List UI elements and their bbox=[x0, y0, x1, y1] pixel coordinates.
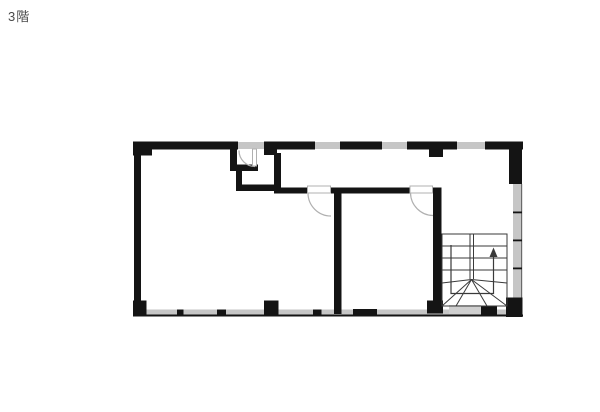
room-door-1-leaf bbox=[308, 186, 331, 193]
top-window-1 bbox=[315, 142, 340, 149]
right-window-edge bbox=[521, 184, 522, 303]
right-window-separator-3 bbox=[513, 268, 522, 270]
floor-plan-page: 3階 bbox=[0, 0, 600, 412]
bottom-pier-3 bbox=[264, 301, 279, 317]
corridor-wall-mid bbox=[331, 188, 410, 194]
right-window-separator-1 bbox=[513, 212, 522, 214]
corridor-wall-left bbox=[274, 188, 307, 194]
entrance-door-leaf bbox=[253, 149, 257, 166]
partition-wall-2-pier bbox=[427, 301, 443, 314]
bottom-left-corner-pier bbox=[133, 301, 147, 317]
room-door-1-arc bbox=[308, 193, 331, 216]
vestibule-wall-box-right bbox=[274, 153, 281, 191]
bottom-pier-2 bbox=[217, 310, 226, 316]
entrance-opening bbox=[238, 142, 264, 149]
left-wall bbox=[134, 142, 141, 317]
right-window-separator-2 bbox=[513, 240, 522, 242]
floor-plan-drawing bbox=[0, 0, 600, 412]
top-wall-stub-pier bbox=[429, 149, 443, 157]
partition-wall-2 bbox=[433, 188, 442, 310]
top-wall-mid2 bbox=[340, 142, 382, 150]
stair-winder-6 bbox=[472, 280, 508, 284]
bottom-pier-1 bbox=[177, 310, 184, 316]
right-wall-top bbox=[509, 142, 522, 185]
bottom-pier-5 bbox=[353, 309, 377, 316]
right-window bbox=[513, 184, 522, 303]
stair-winder-4 bbox=[472, 280, 488, 307]
staircase bbox=[442, 234, 507, 306]
stair-walk-line bbox=[451, 245, 494, 294]
bottom-pier-4 bbox=[313, 310, 322, 316]
stair-winder-5 bbox=[472, 280, 508, 307]
top-wall-mid3 bbox=[407, 142, 457, 150]
entrance-pier bbox=[264, 142, 277, 156]
bottom-pier-6 bbox=[481, 307, 497, 316]
top-window-3 bbox=[457, 142, 485, 149]
stair-winder-1 bbox=[442, 280, 472, 284]
partition-wall-1 bbox=[334, 188, 342, 314]
bottom-wall-edge bbox=[133, 315, 523, 317]
room-door-2-leaf bbox=[410, 186, 433, 193]
room-door-2-arc bbox=[411, 193, 434, 216]
stair-winder-2 bbox=[442, 280, 472, 307]
windows bbox=[134, 142, 522, 315]
top-window-2 bbox=[382, 142, 407, 149]
up-arrow-icon bbox=[490, 248, 498, 258]
bottom-right-corner-pier bbox=[506, 298, 523, 318]
stair-winder-3 bbox=[456, 280, 472, 307]
